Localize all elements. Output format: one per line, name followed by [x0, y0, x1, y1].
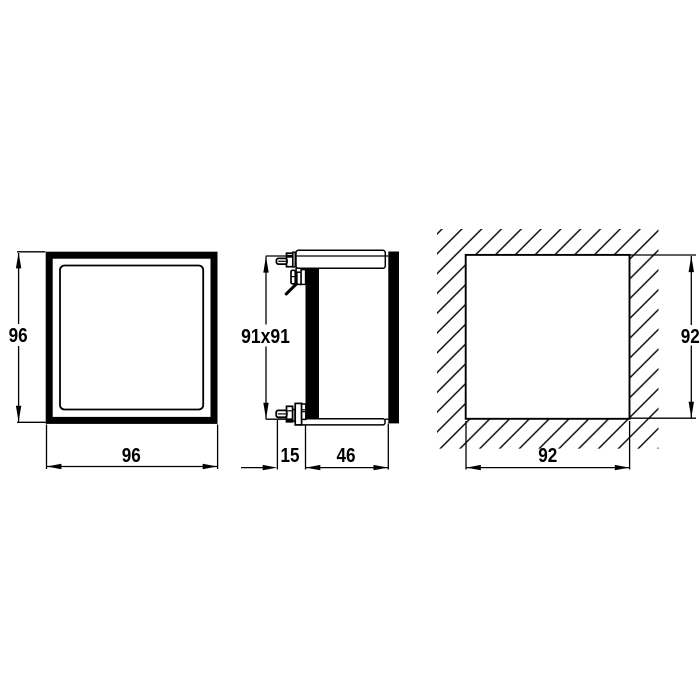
svg-text:92: 92 — [538, 445, 557, 467]
svg-text:92: 92 — [681, 326, 700, 348]
svg-text:96: 96 — [122, 445, 141, 467]
svg-text:46: 46 — [337, 445, 356, 467]
svg-text:96: 96 — [9, 325, 28, 347]
svg-text:15: 15 — [281, 445, 300, 467]
svg-text:91x91: 91x91 — [241, 326, 290, 348]
